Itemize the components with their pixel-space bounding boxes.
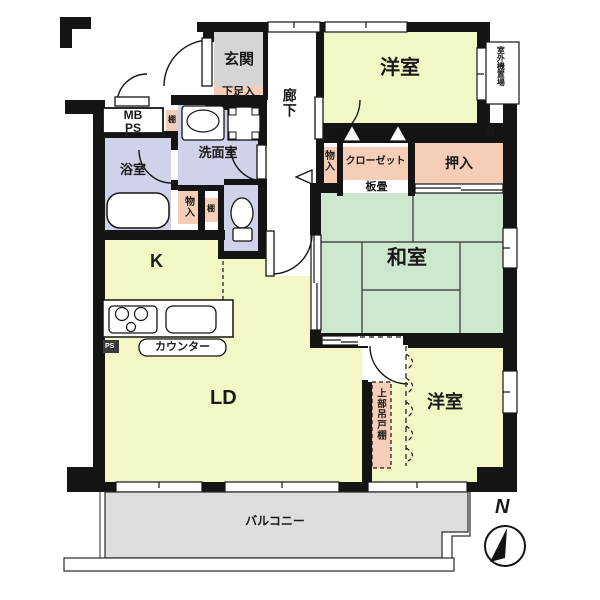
shelf-niche-3 xyxy=(205,198,218,222)
washitsu-floor xyxy=(321,193,503,333)
storage-2-area xyxy=(178,191,198,224)
closet-area xyxy=(343,147,408,180)
bathtub-icon xyxy=(107,193,169,228)
counter-label-box xyxy=(139,339,226,356)
sink-icon xyxy=(166,306,216,333)
genkan-floor xyxy=(214,32,263,86)
floorplan-page: 玄関 下足入 廊下 洋室 室外機置場 棚 物入 クローゼット 押入 板畳 和室 … xyxy=(0,0,600,600)
mbps-box xyxy=(103,108,163,133)
kitchen-ld-floor xyxy=(105,240,317,482)
balcony-layer xyxy=(64,492,470,571)
balcony-ledge xyxy=(64,558,454,571)
toilet-icon xyxy=(231,198,253,228)
oshiire-area xyxy=(415,143,503,184)
compass-icon xyxy=(485,526,525,566)
floorplan-drawing xyxy=(0,0,600,600)
bedroom1-floor xyxy=(324,32,477,123)
hanging-cupboard-strip xyxy=(372,382,391,468)
ps-box xyxy=(103,340,119,353)
ld-extension-floor xyxy=(317,348,362,482)
